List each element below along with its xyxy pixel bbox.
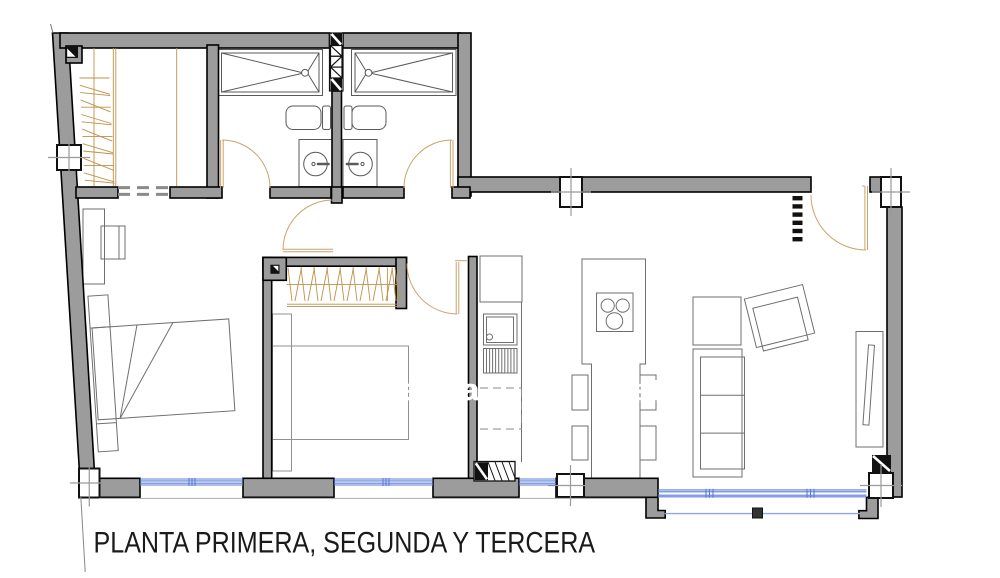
svg-text:PLANTA PRIMERA, SEGUNDA Y TERC: PLANTA PRIMERA, SEGUNDA Y TERCERA	[94, 526, 596, 559]
svg-text:e: e	[401, 372, 418, 407]
svg-text:st: st	[633, 372, 661, 407]
svg-text:a: a	[462, 372, 480, 407]
